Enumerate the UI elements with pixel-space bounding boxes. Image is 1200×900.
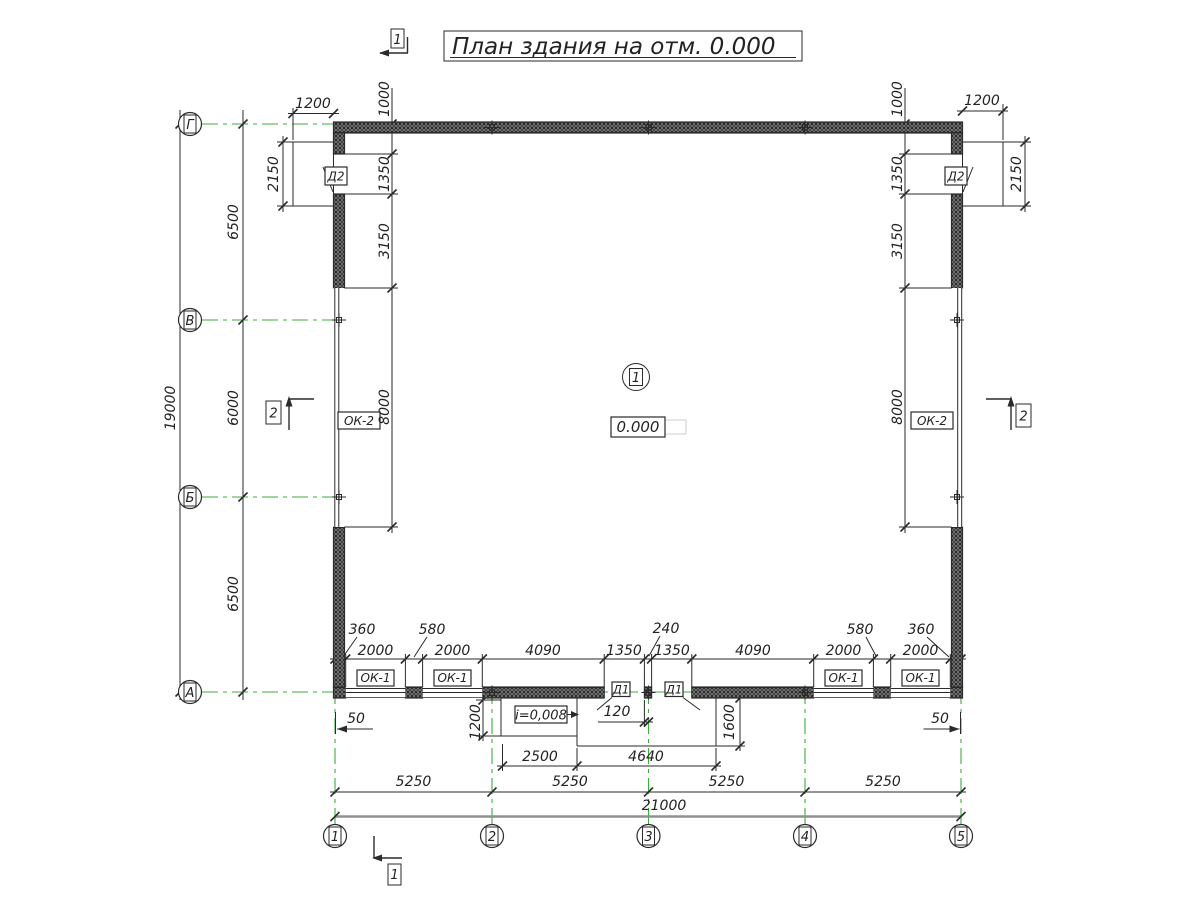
dim-ramp-width: 2500 [522,749,558,765]
dim-bc-11: 2000 [903,643,939,659]
dim-ramp-depth: 1200 [468,704,484,740]
dim-side-door-right: 1350 [890,156,906,192]
dim-side-pier-right: 3150 [890,223,906,259]
dim-landing-width: 4640 [628,749,664,765]
window-ok1-label-2: ОК-1 [438,671,468,685]
dim-side-window-left: 8000 [377,389,393,425]
window-ok1-label-3: ОК-1 [829,671,859,685]
dimension-ticks [176,107,1030,822]
window-ok2-left-label: ОК-2 [344,414,374,428]
dim-bay-2: 5250 [552,774,588,790]
axis-letter-b: Б [186,491,195,506]
door-d1-left-label: Д1 [612,683,629,697]
door-d1-right-label: Д1 [665,683,682,697]
axis-number-1: 1 [331,830,339,845]
dim-side-offset-right: 1000 [890,81,906,117]
floor-plan-drawing: Д2 Д2 Д1 Д1 ОК-1 ОК-1 ОК-1 ОК-1 ОК-2 ОК-… [0,0,1200,900]
dim-corner-left: 50 [347,711,365,727]
level-mark: 0.000 [617,418,660,436]
dim-porch-width-left: 1200 [295,96,331,112]
section-arrow-up-icon [1008,396,1015,407]
section-arrow-up-icon [286,396,293,407]
dim-side-offset-left: 1000 [377,81,393,117]
dim-row-2: 6000 [226,390,242,426]
dim-row-1: 6500 [226,204,242,240]
dim-bc-3: 2000 [435,643,471,659]
dim-overall-height: 19000 [163,386,179,431]
column-markers [332,121,964,700]
slope-arrow [571,711,579,718]
dim-bay-3: 5250 [709,774,745,790]
section-1-label: 1 [393,33,401,48]
dim-bc-9: 2000 [826,643,862,659]
dimension-texts: 19000 6500 6000 6500 2150 2150 1200 1200… [163,81,1025,814]
dim-bay-4: 5250 [865,774,901,790]
section-arrow-left-icon [379,50,389,57]
dim-overall-width: 21000 [642,798,687,814]
dim-bc-2: 580 [419,622,446,638]
window-ok1-label-4: ОК-1 [906,671,936,685]
door-d2-right-label: Д2 [946,170,964,184]
dim-bc-1: 2000 [358,643,394,659]
room-number: 1 [632,371,640,386]
door-d2-left-label: Д2 [326,170,344,184]
dim-porch-depth-left: 2150 [266,156,282,192]
axis-letter-v: В [186,314,195,329]
element-marks: Д2 Д2 Д1 Д1 ОК-1 ОК-1 ОК-1 ОК-1 ОК-2 ОК-… [325,167,967,724]
slope-label: i=0,008 [515,709,567,724]
dim-bc-10: 580 [847,622,874,638]
dim-landing-depth: 1600 [722,704,738,740]
section-2-label: 2 [269,407,277,422]
grid-bubbles-left: Г В Б А [179,113,202,704]
axis-letter-a: А [185,686,195,701]
window-ok2-right-label: ОК-2 [917,414,947,428]
grid-bubbles-bottom: 1 2 3 4 5 [324,825,973,848]
section-marker-1-bottom: 1 [372,836,402,885]
dim-corner-right: 50 [931,711,949,727]
section-marker-1-top: 1 [379,29,408,57]
dim-side-window-right: 8000 [890,389,906,425]
room-marker: 1 0.000 [611,364,686,438]
axis-lines [202,124,963,825]
dim-bc-5: 1350 [606,643,642,659]
dim-bc-12: 360 [908,622,935,638]
walls [334,122,963,698]
dim-bc-0: 360 [349,622,376,638]
axis-number-3: 3 [644,830,652,845]
dim-bc-4: 4090 [525,643,561,659]
dim-porch-depth-right: 2150 [1009,156,1025,192]
axis-number-2: 2 [488,830,496,845]
axis-number-5: 5 [957,830,965,845]
axis-number-4: 4 [801,830,809,845]
dim-bc-6: 240 [653,621,680,637]
dim-side-door-left: 1350 [377,156,393,192]
drawing-canvas: Д2 Д2 Д1 Д1 ОК-1 ОК-1 ОК-1 ОК-1 ОК-2 ОК-… [0,0,1200,900]
dim-bay-1: 5250 [396,774,432,790]
dim-pier-half: 120 [604,704,631,720]
section-marker-2-right: 2 [986,396,1031,430]
window-ok1-label-1: ОК-1 [361,671,391,685]
dim-row-3: 6500 [226,576,242,612]
section-2-label: 2 [1019,410,1027,425]
title-block: План здания на отм. 0.000 [444,31,802,61]
section-marker-2-left: 2 [266,396,314,430]
dim-bc-7: 1350 [654,643,690,659]
dim-side-pier-left: 3150 [377,223,393,259]
section-1-label: 1 [390,868,398,883]
dim-porch-width-right: 1200 [964,93,1000,109]
dim-bc-8: 4090 [735,643,771,659]
page-title: План здания на отм. 0.000 [452,34,776,60]
